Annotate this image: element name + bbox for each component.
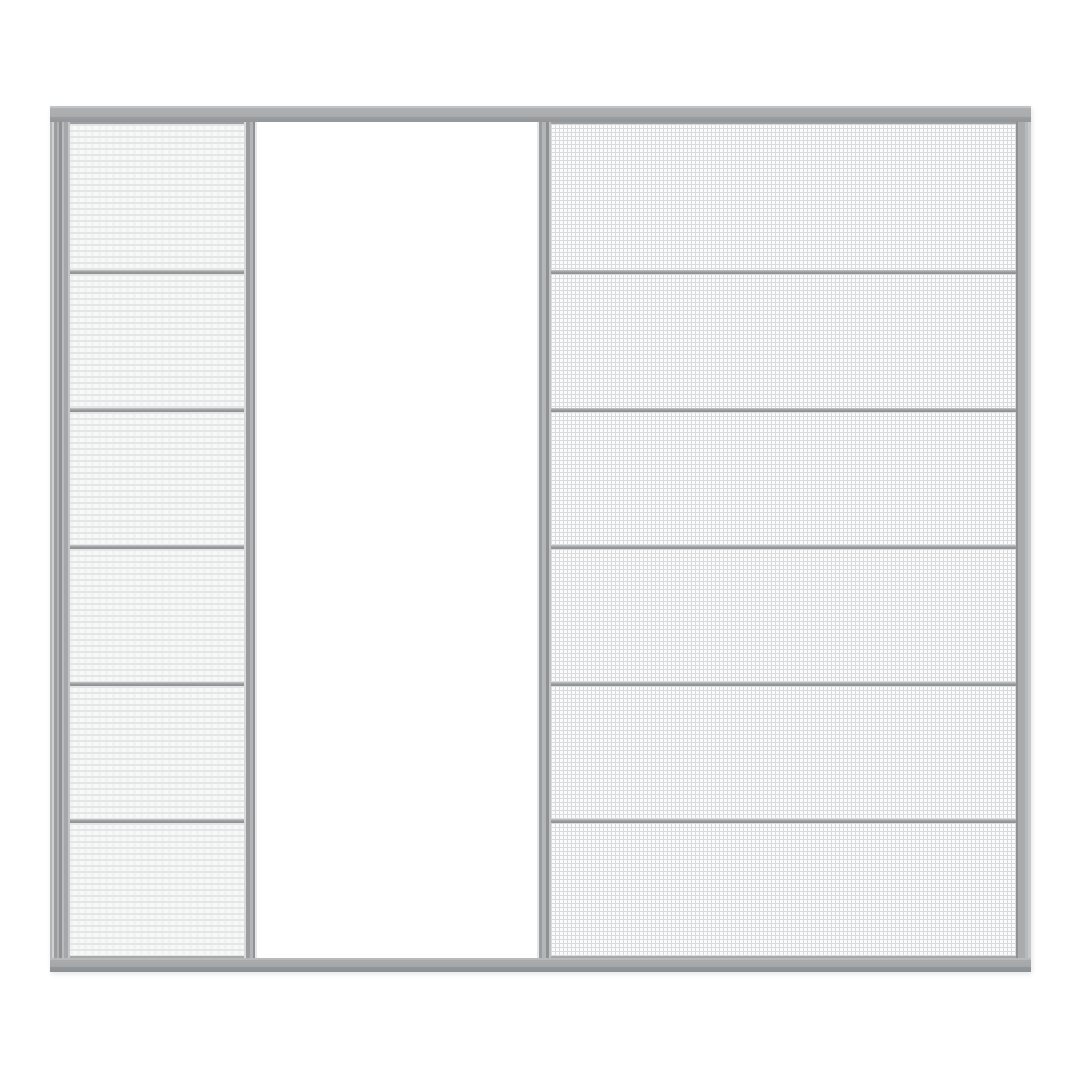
screen-door-assembly	[50, 106, 1031, 972]
pleated-screen-panel	[70, 122, 244, 958]
pleated-screen-section	[70, 549, 244, 682]
mesh-screen-section	[551, 823, 1016, 956]
mesh-screen-section	[551, 274, 1016, 407]
right-frame-track	[1016, 122, 1031, 958]
pleated-panel-stile	[244, 122, 257, 958]
mesh-panel-stile	[537, 122, 551, 958]
top-track-rail	[50, 106, 1031, 122]
mesh-screen-section	[551, 549, 1016, 682]
pleated-screen-section	[70, 412, 244, 545]
left-frame-track	[50, 122, 70, 958]
pleated-screen-section	[70, 823, 244, 956]
mesh-screen-section	[551, 686, 1016, 819]
mesh-screen-section	[551, 412, 1016, 545]
pleated-screen-section	[70, 124, 244, 270]
open-doorway	[257, 122, 537, 958]
pleated-screen-section	[70, 274, 244, 407]
mesh-screen-panel	[551, 122, 1016, 958]
pleated-screen-section	[70, 686, 244, 819]
door-band	[50, 122, 1031, 958]
bottom-track-rail	[50, 958, 1031, 972]
mesh-screen-section	[551, 124, 1016, 270]
